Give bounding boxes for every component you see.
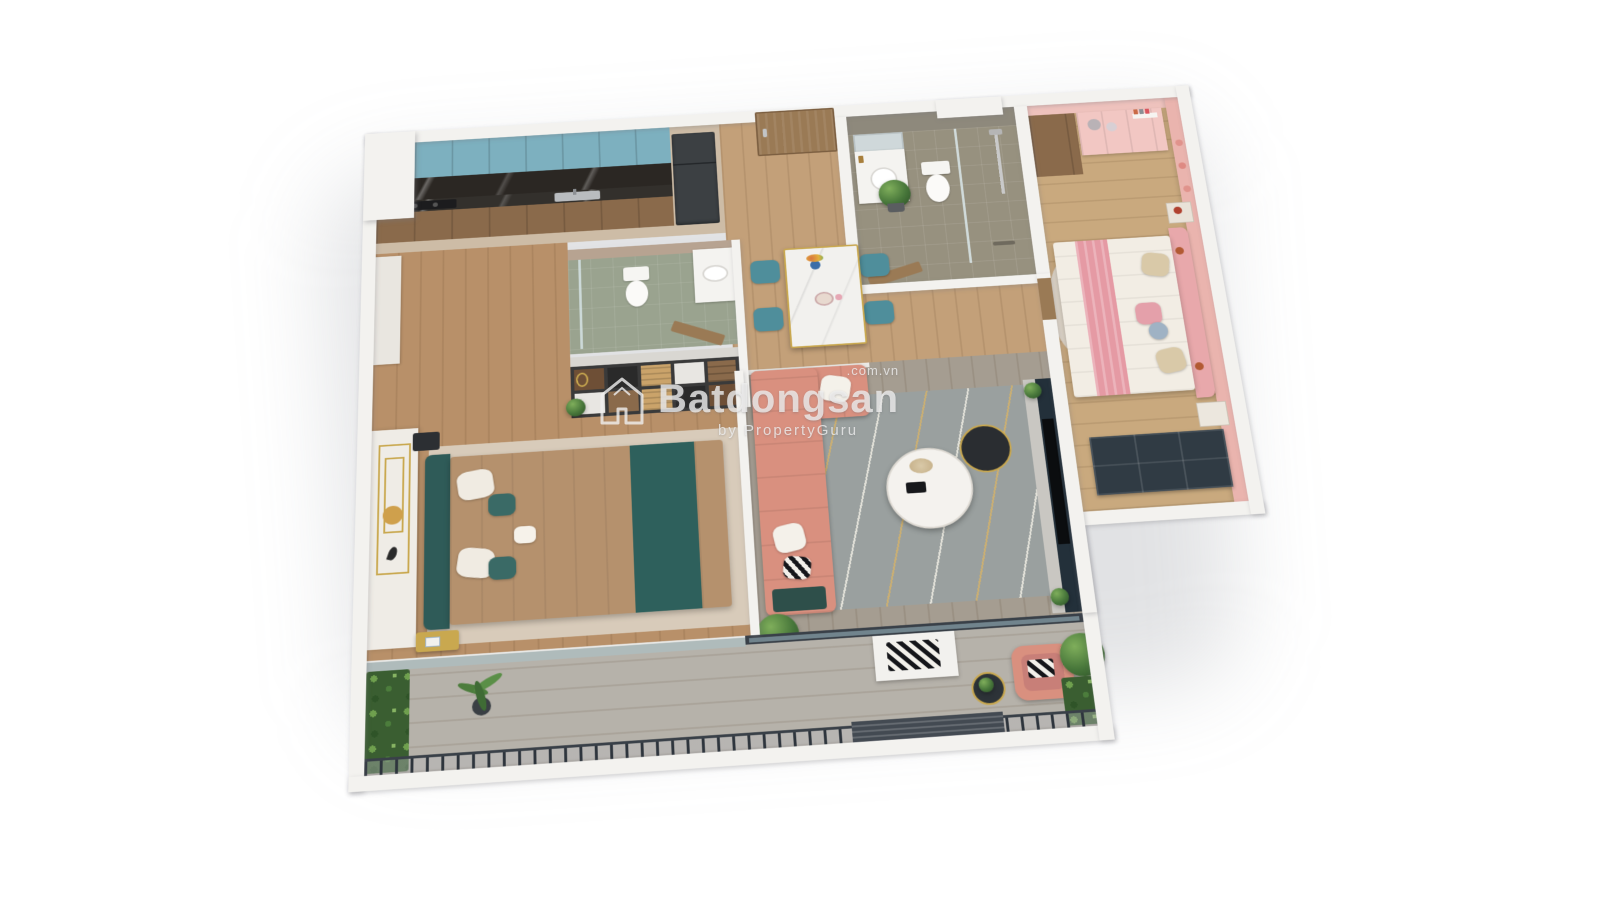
wc-door — [670, 320, 725, 345]
coffee-table-tray — [906, 481, 927, 493]
bath-toiletries — [858, 156, 864, 163]
master-side-table — [413, 432, 440, 452]
balcony-bench — [872, 631, 959, 682]
dining-chair — [859, 253, 890, 277]
entry-door — [755, 108, 838, 157]
shelf-books — [1139, 109, 1144, 114]
wc-glass-screen — [578, 260, 583, 349]
bench-chevron-cushion — [886, 639, 941, 671]
dressing-cabinet — [373, 256, 401, 366]
shower-drain — [993, 241, 1016, 246]
batdongsan-house-logo-icon — [598, 375, 646, 427]
wc-toilet-bowl — [625, 280, 648, 307]
shower-head — [989, 129, 1003, 135]
watermark-domain: .com.vn — [658, 364, 899, 377]
master-pillow-teal — [489, 556, 517, 580]
wc-toilet-tank — [623, 266, 649, 281]
kids-wardrobe — [1028, 113, 1083, 177]
kids-pink-throw — [1075, 239, 1131, 396]
watermark-byline: by PropertyGuru — [718, 423, 899, 438]
dining-chair — [750, 260, 781, 285]
dressing-floor — [372, 243, 572, 431]
kids-pillow-beige — [1154, 346, 1189, 375]
master-pillow-teal — [488, 493, 515, 517]
kids-pillow-beige — [1141, 252, 1169, 277]
armchair-chevron-pillow — [1027, 658, 1055, 678]
floorplan-render: .com.vn Batdongsan by PropertyGuru — [0, 0, 1600, 900]
sofa-pillow-chevron — [783, 556, 812, 580]
master-pillow-small-white — [514, 525, 536, 544]
master-teal-runner — [630, 442, 703, 613]
dining-chair — [863, 300, 895, 325]
heart-wall-decor — [1183, 185, 1192, 192]
bath-toilet-tank — [921, 161, 951, 176]
shelf-books — [1133, 109, 1138, 114]
entry-door-handle — [762, 129, 767, 138]
shower-column — [994, 133, 1005, 194]
dining-chair — [753, 307, 784, 332]
faucet — [573, 189, 577, 195]
kids-bench-trunk — [1196, 401, 1230, 427]
duct-shaft-top-right — [935, 96, 1003, 118]
sofa-teal-throw — [772, 586, 827, 612]
hall-plant-pot — [887, 203, 905, 213]
heart-wall-decor — [1178, 162, 1187, 169]
plush-elephant — [1148, 322, 1170, 340]
heart-wall-decor — [1175, 139, 1184, 146]
watermark-brand: Batdongsan — [658, 379, 899, 419]
room-kitchen — [376, 124, 726, 254]
kids-dark-drawers — [1089, 429, 1233, 496]
watermark: .com.vn Batdongsan by PropertyGuru — [598, 364, 899, 438]
refrigerator — [671, 132, 720, 226]
watermark-text: .com.vn Batdongsan by PropertyGuru — [658, 364, 899, 438]
shelf-books — [1145, 109, 1150, 114]
master-bed-mattress — [450, 440, 733, 625]
duct-shaft-top-left — [363, 131, 415, 221]
shower-glass-partition — [954, 129, 973, 263]
room-guest-wc — [568, 240, 738, 354]
nightstand-book — [425, 636, 440, 647]
bath-toilet-bowl — [925, 174, 952, 203]
master-headboard — [423, 454, 450, 631]
room-master-bedroom — [367, 407, 760, 661]
